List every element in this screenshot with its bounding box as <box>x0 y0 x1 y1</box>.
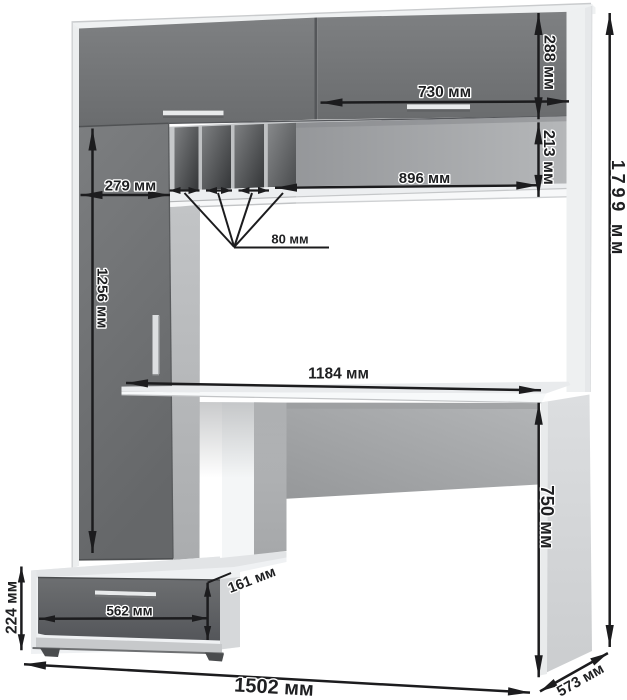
svg-text:80 мм: 80 мм <box>271 232 308 247</box>
svg-text:896 мм: 896 мм <box>399 170 450 187</box>
svg-text:730 мм: 730 мм <box>418 84 471 101</box>
svg-text:1184 мм: 1184 мм <box>308 365 369 382</box>
svg-text:1502 мм: 1502 мм <box>234 674 315 700</box>
svg-text:1256 мм: 1256 мм <box>93 268 110 328</box>
svg-text:224 мм: 224 мм <box>3 581 20 634</box>
svg-text:279 мм: 279 мм <box>105 177 156 194</box>
svg-text:562 мм: 562 мм <box>106 604 152 619</box>
svg-text:213 мм: 213 мм <box>540 130 557 185</box>
svg-text:750 мм: 750 мм <box>537 485 558 548</box>
svg-text:573 мм: 573 мм <box>554 660 607 700</box>
svg-text:1799 мм: 1799 мм <box>608 160 627 258</box>
svg-text:288 мм: 288 мм <box>540 35 557 90</box>
